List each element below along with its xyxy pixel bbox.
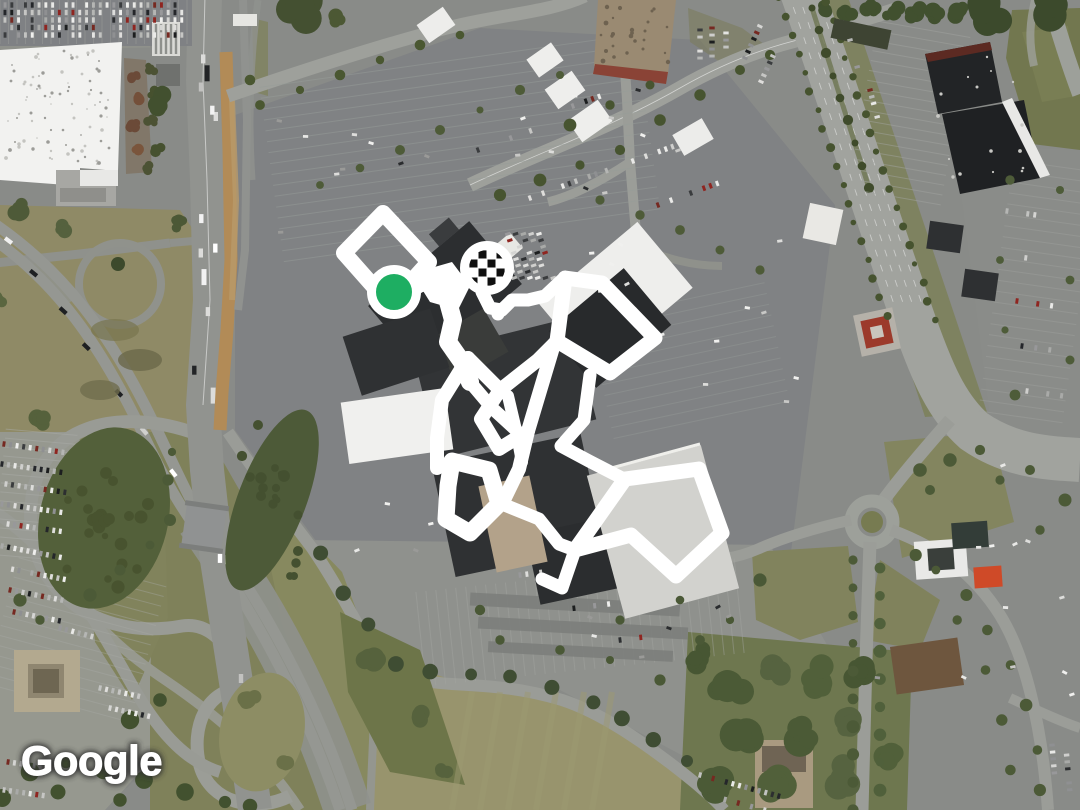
svg-text:Google: Google [21, 737, 162, 784]
